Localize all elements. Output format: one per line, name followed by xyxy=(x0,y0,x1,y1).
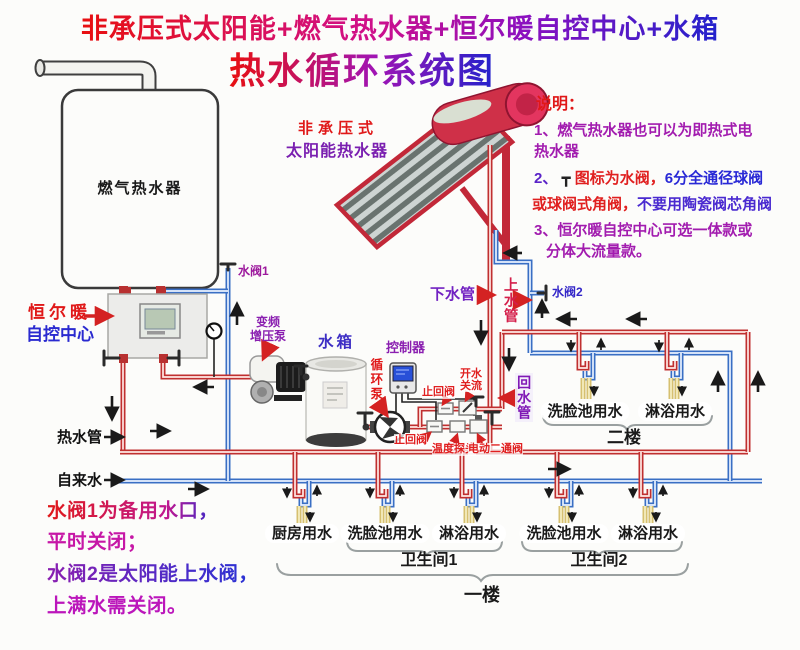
legend-note3-line2: 分体大流量款。 xyxy=(546,243,651,260)
booster-pump-label: 变频 增压泵 xyxy=(250,315,286,343)
title-line2: 热水循环系统图 xyxy=(229,50,495,91)
open-close-line2: 关流 xyxy=(460,380,482,392)
floor2-label: 二楼 xyxy=(607,428,641,448)
legend-note2b-blue: 不要用陶瓷阀芯角阀 xyxy=(637,196,772,213)
footnote-line4: 上满水需关闭。 xyxy=(47,595,187,617)
temp-probe-icon xyxy=(450,421,465,432)
solar-label-line1: 非承压式 xyxy=(298,120,378,137)
booster-pump-label-line2: 增压泵 xyxy=(250,329,286,343)
legend-note2-blue: 6分全通径球阀 xyxy=(665,170,763,187)
booster-pump-label-line1: 变频 xyxy=(250,315,286,329)
up-pipe-label: 上水管 xyxy=(501,277,518,324)
floor1-label: 一楼 xyxy=(464,585,500,606)
valve2-icon xyxy=(538,286,546,300)
tank-label: 水箱 xyxy=(318,334,355,352)
floor1-outlet-shower1: 淋浴用水 xyxy=(432,524,506,543)
floor2-outlet-washbasin: 洗脸池用水 xyxy=(540,402,629,421)
legend-note2-number: 2、 xyxy=(534,170,562,187)
gas-heater-label: 燃气热水器 xyxy=(97,180,182,197)
check-valve-top-label: 止回阀 xyxy=(422,386,455,399)
bathroom1-label: 卫生间1 xyxy=(401,552,458,570)
down-pipe-label: 下水管 xyxy=(430,286,475,303)
legend-note1-line2: 热水器 xyxy=(534,143,579,160)
diagram-page: 非承压式太阳能+燃气热水器+恒尔暖自控中心+水箱 热水循环系统图 非承压式 太阳… xyxy=(0,0,800,650)
legend-note1-line1: 1、燃气热水器也可以为即热式电 xyxy=(534,122,752,139)
title-line1: 非承压式太阳能+燃气热水器+恒尔暖自控中心+水箱 xyxy=(81,14,719,45)
solar-water-heater xyxy=(337,76,553,262)
legend-note2-line1: 2、 ┳ 图标为水阀，6分全通径球阀 xyxy=(534,170,763,187)
floor1-outlet-shower2: 淋浴用水 xyxy=(611,524,685,543)
valve1-label: 水阀1 xyxy=(238,265,269,279)
floor1-outlet-washbasin1: 洗脸池用水 xyxy=(340,524,429,543)
solar-brace-leg xyxy=(462,188,508,248)
floor2-outlet-shower: 淋浴用水 xyxy=(638,402,712,421)
hot-pipe-label: 热水管 xyxy=(57,429,102,446)
valve-glyph-icon: ┳ xyxy=(562,170,575,187)
water-tank-unit xyxy=(303,357,370,447)
solar-label-line2: 太阳能热水器 xyxy=(286,143,388,161)
legend-note2-red: 图标为水阀， xyxy=(575,170,665,187)
controller-label: 控制器 xyxy=(386,341,425,356)
floor1-outlet-kitchen: 厨房用水 xyxy=(265,524,339,543)
circ-pump-label: 循环泵 xyxy=(368,358,382,402)
bathroom2-label: 卫生间2 xyxy=(571,552,628,570)
control-center-unit xyxy=(108,287,207,363)
floor1-outlet-washbasin2: 洗脸池用水 xyxy=(519,524,608,543)
control-center-label-line2: 自控中心 xyxy=(26,325,94,345)
booster-pump-unit xyxy=(250,356,306,403)
open-close-valve-label: 开水 关流 xyxy=(460,368,482,392)
motor-valve-icon xyxy=(470,420,487,433)
legend-note2b-red: 或球阀式角阀， xyxy=(532,196,637,213)
pressure-gauge-icon xyxy=(207,324,222,378)
footnote-line1: 水阀1为备用水口， xyxy=(47,500,218,522)
motor-valve-label: 电动二通阀 xyxy=(468,443,523,456)
control-center-label-line1: 恒尔暖 xyxy=(28,303,91,323)
footnote-line2: 平时关闭； xyxy=(47,531,147,553)
check-valve-bottom-label: 止回阀 xyxy=(394,434,427,447)
valve1-icon xyxy=(221,264,235,270)
legend-note3-line1: 3、恒尔暖自控中心可选一体款或 xyxy=(534,222,752,239)
open-close-line1: 开水 xyxy=(460,368,482,380)
legend-note2-line2: 或球阀式角阀，不要用陶瓷阀芯角阀 xyxy=(532,196,772,213)
footnote-line3: 水阀2是太阳能上水阀， xyxy=(47,563,258,585)
legend-heading: 说明： xyxy=(536,96,584,114)
tap-water-label: 自来水 xyxy=(57,472,102,489)
valve2-label: 水阀2 xyxy=(552,286,583,300)
return-pipe-label: 回水管 xyxy=(515,373,533,422)
